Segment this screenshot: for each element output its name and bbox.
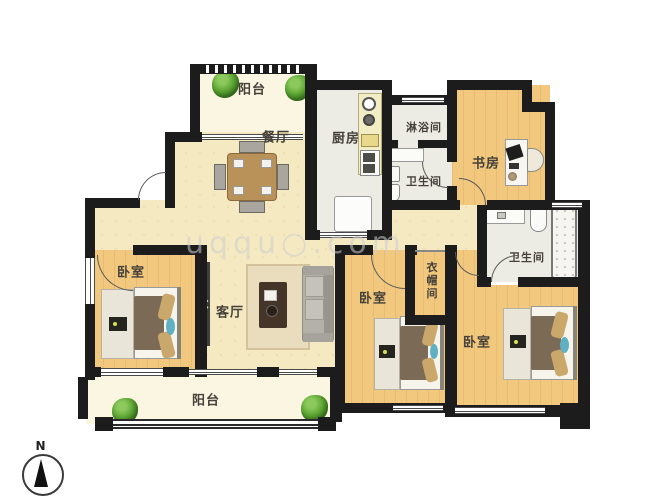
wall [382, 80, 392, 240]
tv-light-dot [514, 340, 518, 344]
wall [445, 325, 457, 413]
plate [261, 186, 272, 195]
keyboard-icon [509, 163, 519, 169]
room-label-kitchen: 厨房 [332, 128, 360, 147]
room-label-bathroom-right: 卫生间 [509, 249, 545, 265]
wall [447, 80, 532, 90]
bed-accent [430, 344, 438, 359]
headboard [440, 316, 444, 390]
tv-icon [379, 345, 395, 358]
floorplan-canvas: × [0, 0, 663, 500]
faucet-icon [497, 212, 506, 219]
wall [330, 367, 342, 422]
wall [477, 277, 491, 287]
dining-chair [239, 201, 265, 213]
coffee-table-bowl [266, 305, 278, 317]
entry-door-arc [138, 172, 166, 200]
room-label-dining: 餐厅 [262, 127, 290, 146]
tv-icon [510, 335, 526, 348]
balcony-railing [113, 419, 318, 429]
headboard [573, 306, 577, 380]
room-label-study: 书房 [472, 153, 500, 172]
room-label-shower: 淋浴间 [406, 119, 442, 135]
spice-box [361, 134, 379, 147]
wall [578, 200, 590, 412]
room-label-bedroom-middle: 卧室 [359, 288, 387, 307]
wall [195, 245, 207, 377]
tv-light-dot [383, 350, 387, 354]
toilet-icon [530, 208, 547, 232]
sofa-cushion [305, 276, 324, 297]
tv-light-dot [113, 322, 117, 326]
wall [190, 64, 200, 142]
window [393, 405, 443, 411]
wall [447, 88, 457, 162]
sink-basin [363, 153, 375, 162]
wall [190, 64, 317, 74]
sliding-door [189, 369, 257, 375]
sofa-cushion [305, 299, 324, 320]
sofa-back [324, 268, 333, 340]
sink-basin [363, 164, 375, 173]
plate [233, 159, 244, 168]
wall [560, 403, 590, 429]
room-label-bathroom-top: 卫生间 [406, 173, 442, 189]
wall [78, 377, 88, 419]
wall [305, 64, 317, 240]
wall [95, 417, 113, 431]
site-watermark: uqqu○.com [185, 226, 406, 261]
wall [165, 132, 175, 208]
bath-counter [390, 148, 424, 162]
wall [487, 200, 547, 210]
compass-north-label: N [35, 439, 46, 453]
room-label-balcony-bottom: 阳台 [192, 390, 220, 409]
wall [392, 140, 398, 148]
wall [318, 417, 336, 431]
wall [418, 140, 457, 148]
wall [545, 102, 555, 210]
room-label-cloakroom: 衣帽间 [423, 262, 439, 301]
stove-burner-icon [363, 114, 375, 126]
wall [405, 315, 457, 325]
dining-chair [214, 164, 226, 190]
sliding-door [279, 369, 317, 375]
cloakroom-opening-line [415, 250, 445, 252]
window [101, 368, 163, 376]
wall [163, 367, 189, 377]
window [455, 407, 545, 414]
bed-accent [166, 318, 175, 335]
window [402, 97, 444, 103]
coffee-table-card [264, 290, 277, 301]
room-label-living: 客厅 [216, 302, 244, 321]
plate [261, 159, 272, 168]
wall [85, 367, 101, 377]
flower-icon [508, 172, 517, 181]
wall [518, 277, 580, 287]
wall [257, 367, 279, 377]
plate [233, 186, 244, 195]
window [552, 202, 582, 208]
dining-chair [277, 164, 289, 190]
headboard [177, 287, 181, 359]
window [85, 258, 95, 304]
compass-needle-icon [34, 459, 48, 487]
bed-accent [560, 337, 569, 353]
wall [382, 200, 460, 210]
bathtub [551, 205, 577, 281]
sofa-armrest [303, 266, 333, 275]
wall [305, 80, 392, 90]
wall [405, 255, 415, 317]
room-label-bedroom-left: 卧室 [117, 262, 145, 281]
tv-icon [109, 317, 127, 331]
sofa-armrest [303, 333, 333, 342]
room-label-balcony-top: 阳台 [238, 79, 266, 98]
room-label-bedroom-right: 卧室 [463, 332, 491, 351]
stove-burner-icon [362, 97, 376, 111]
